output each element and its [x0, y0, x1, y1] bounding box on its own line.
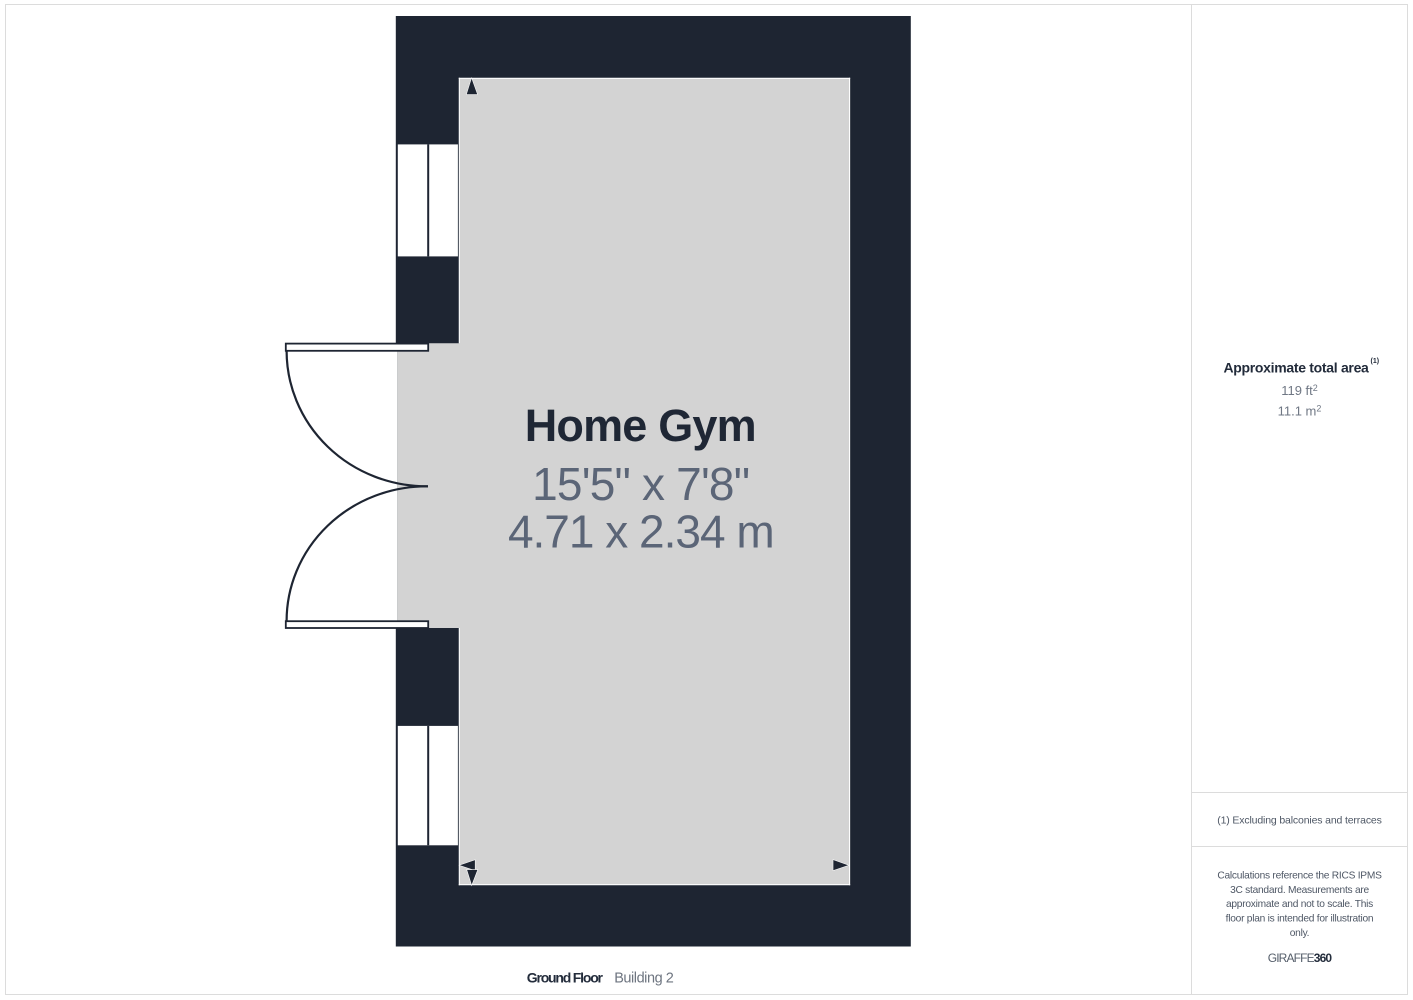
- svg-text:Building 2: Building 2: [614, 971, 674, 987]
- svg-text:approximate and not to scale.: approximate and not to scale. This: [1226, 899, 1373, 910]
- svg-text:GIRAFFE360: GIRAFFE360: [1268, 951, 1333, 965]
- svg-text:Ground Floor: Ground Floor: [527, 970, 604, 986]
- svg-text:11.1 m2: 11.1 m2: [1278, 404, 1322, 419]
- svg-text:(1) Excluding balconies and te: (1) Excluding balconies and terraces: [1217, 815, 1381, 827]
- svg-text:Approximate total area: Approximate total area: [1223, 359, 1369, 375]
- svg-text:3C standard. Measurements are: 3C standard. Measurements are: [1230, 885, 1369, 896]
- svg-text:Calculations reference the RIC: Calculations reference the RICS IPMS: [1217, 871, 1382, 882]
- svg-text:15'5" x 7'8": 15'5" x 7'8": [532, 458, 749, 510]
- svg-text:4.71 x 2.34 m: 4.71 x 2.34 m: [508, 506, 774, 558]
- svg-text:only.: only.: [1290, 928, 1310, 939]
- svg-text:floor plan is intended for ill: floor plan is intended for illustration: [1226, 914, 1374, 925]
- svg-text:(1): (1): [1371, 358, 1380, 365]
- svg-text:Home Gym: Home Gym: [525, 400, 756, 451]
- svg-text:119 ft2: 119 ft2: [1281, 383, 1318, 398]
